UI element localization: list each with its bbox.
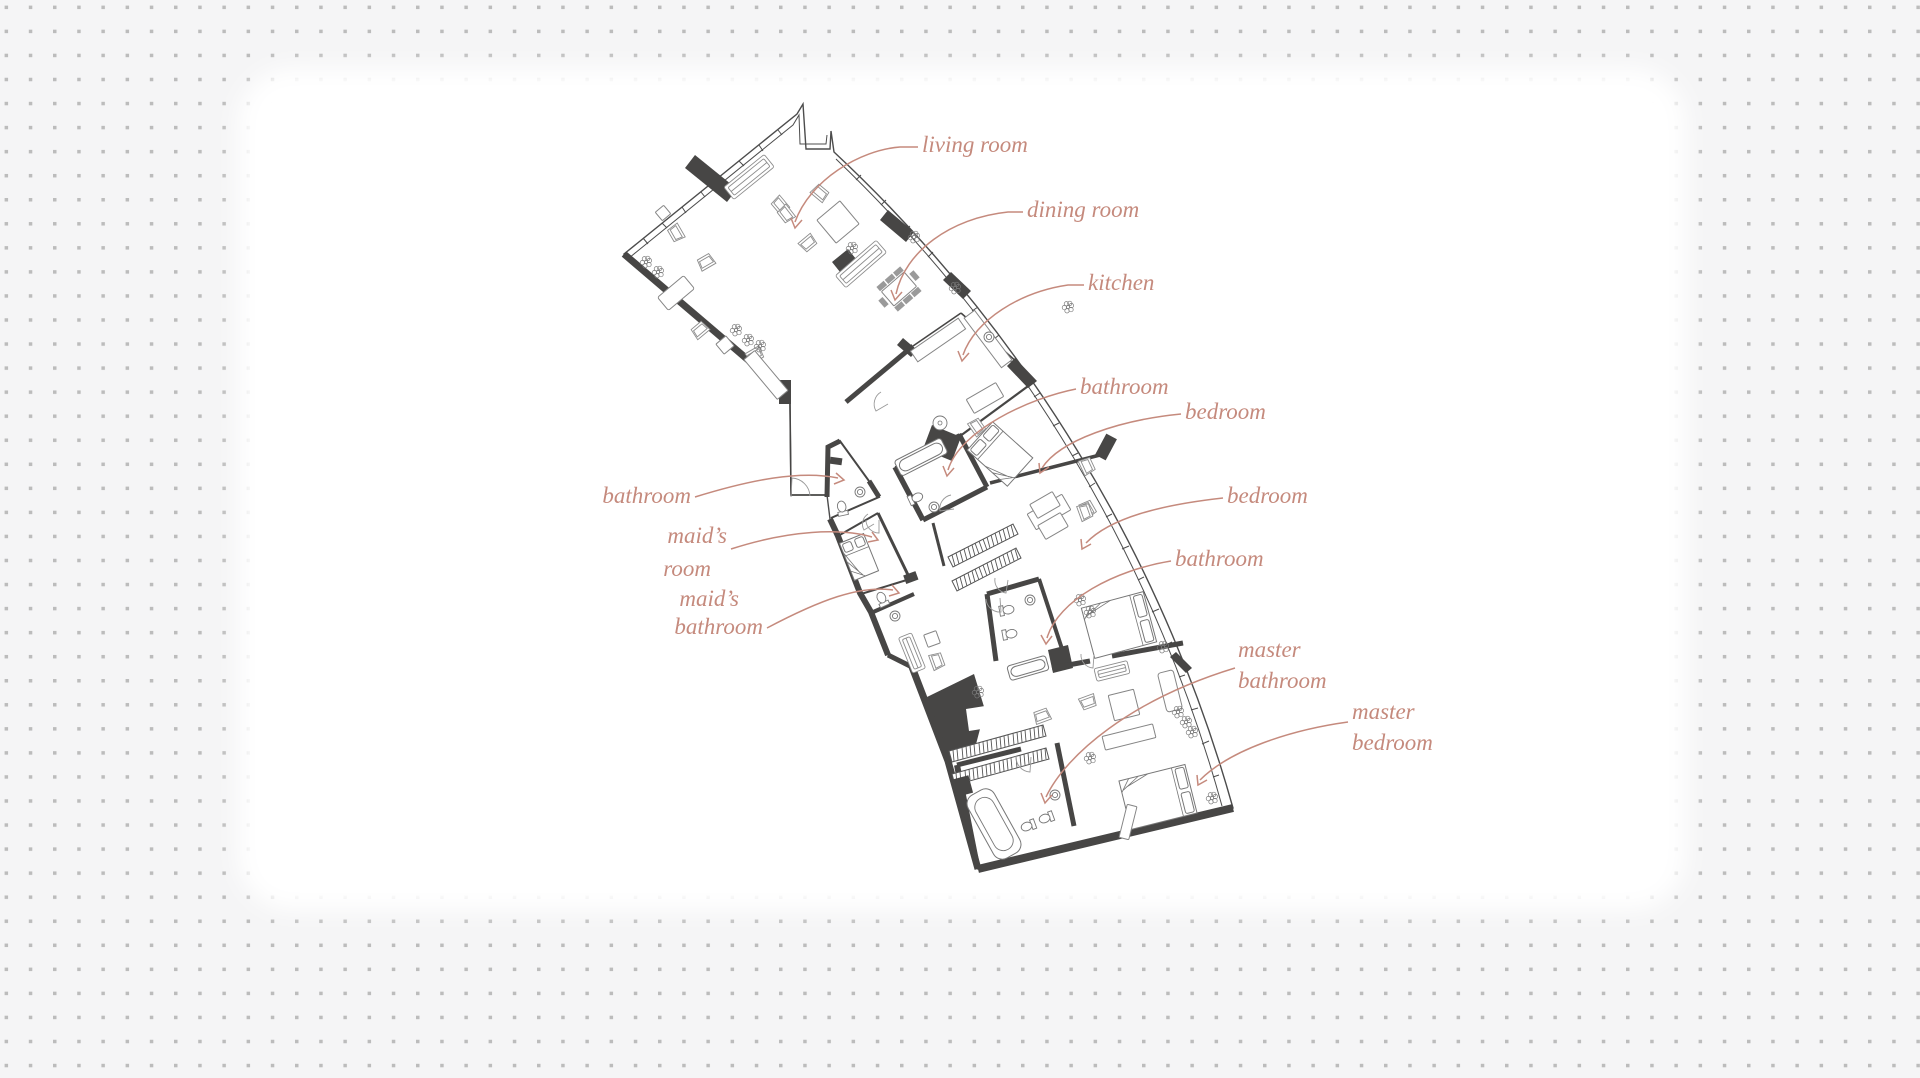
- svg-text:bathroom: bathroom: [1080, 374, 1169, 399]
- svg-text:dining room: dining room: [1027, 197, 1139, 222]
- svg-text:room: room: [663, 556, 711, 581]
- svg-text:maid’s: maid’s: [679, 586, 739, 611]
- svg-text:kitchen: kitchen: [1088, 270, 1154, 295]
- svg-text:living room: living room: [922, 132, 1028, 157]
- svg-text:bedroom: bedroom: [1185, 399, 1266, 424]
- svg-text:master: master: [1352, 699, 1416, 724]
- svg-text:maid’s: maid’s: [667, 523, 727, 548]
- svg-text:bathroom: bathroom: [1175, 546, 1264, 571]
- svg-text:bathroom: bathroom: [602, 483, 691, 508]
- svg-text:bedroom: bedroom: [1227, 483, 1308, 508]
- svg-text:bedroom: bedroom: [1352, 730, 1433, 755]
- svg-text:bathroom: bathroom: [674, 614, 763, 639]
- svg-text:master: master: [1238, 637, 1302, 662]
- svg-text:bathroom: bathroom: [1238, 668, 1327, 693]
